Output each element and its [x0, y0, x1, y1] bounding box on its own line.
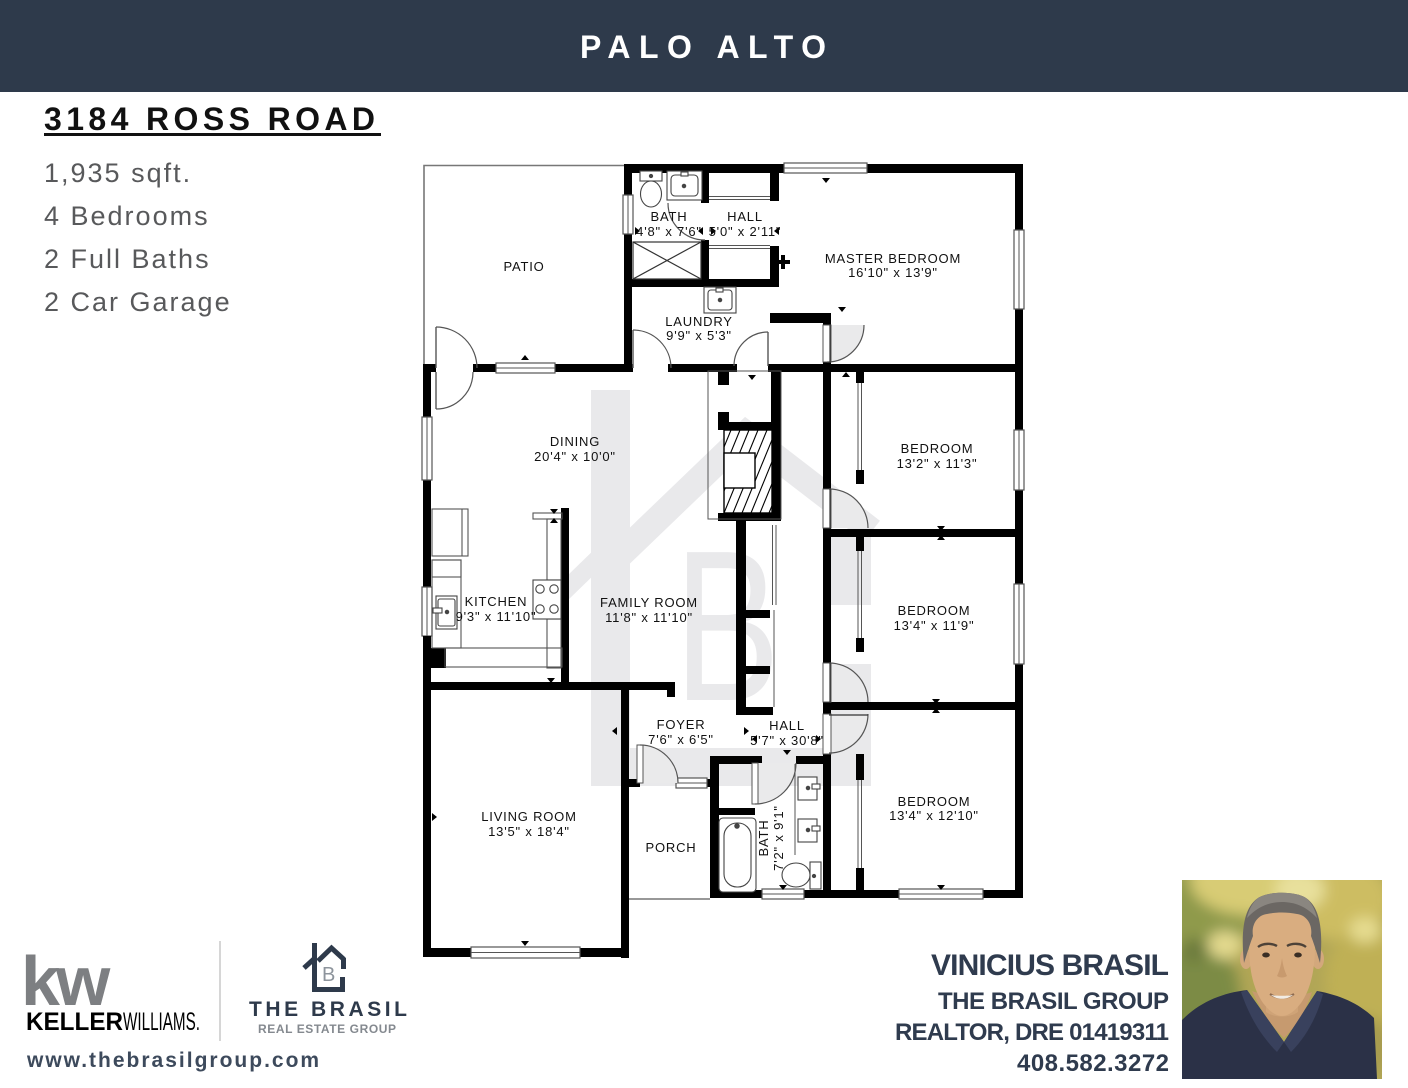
svg-text:13'4" x 11'9": 13'4" x 11'9" [894, 618, 975, 633]
svg-text:FAMILY ROOM: FAMILY ROOM [600, 595, 698, 610]
svg-text:408.582.3272: 408.582.3272 [1017, 1050, 1169, 1077]
svg-text:PATIO: PATIO [503, 259, 544, 274]
svg-text:2 Full Baths: 2 Full Baths [44, 244, 211, 274]
svg-text:11'8" x 11'10": 11'8" x 11'10" [605, 610, 693, 625]
svg-text:HALL: HALL [769, 718, 805, 733]
svg-text:4'8" x 7'6": 4'8" x 7'6" [636, 224, 702, 239]
svg-text:WILLIAMS.: WILLIAMS. [123, 1008, 200, 1036]
svg-text:3184 ROSS ROAD: 3184 ROSS ROAD [44, 101, 375, 137]
svg-text:20'4" x 10'0": 20'4" x 10'0" [534, 449, 616, 464]
svg-text:THE BRASIL GROUP: THE BRASIL GROUP [938, 988, 1169, 1015]
svg-text:BATH: BATH [756, 820, 771, 857]
svg-text:FOYER: FOYER [657, 717, 706, 732]
svg-text:BATH: BATH [651, 209, 688, 224]
svg-text:4 Bedrooms: 4 Bedrooms [44, 201, 210, 231]
svg-text:16'10" x 13'9": 16'10" x 13'9" [848, 265, 938, 280]
svg-text:13'2" x 11'3": 13'2" x 11'3" [897, 456, 978, 471]
svg-text:9'3" x 11'10": 9'3" x 11'10" [456, 609, 537, 624]
svg-text:www.thebrasilgroup.com: www.thebrasilgroup.com [26, 1049, 321, 1072]
svg-text:HALL: HALL [727, 209, 763, 224]
svg-text:PORCH: PORCH [646, 840, 697, 855]
svg-text:REALTOR, DRE 01419311: REALTOR, DRE 01419311 [895, 1019, 1169, 1046]
svg-text:LIVING ROOM: LIVING ROOM [481, 809, 576, 824]
svg-text:BEDROOM: BEDROOM [898, 603, 971, 618]
svg-text:5'7" x 30'8": 5'7" x 30'8" [750, 733, 824, 748]
svg-text:BEDROOM: BEDROOM [901, 441, 974, 456]
svg-text:KITCHEN: KITCHEN [465, 594, 528, 609]
svg-text:2 Car Garage: 2 Car Garage [44, 287, 232, 317]
svg-text:1,935 sqft.: 1,935 sqft. [44, 158, 192, 188]
svg-text:13'4" x 12'10": 13'4" x 12'10" [889, 808, 979, 823]
svg-text:B: B [322, 964, 335, 986]
svg-text:PALO ALTO: PALO ALTO [580, 29, 826, 65]
svg-text:BEDROOM: BEDROOM [898, 794, 971, 809]
svg-text:9'9" x 5'3": 9'9" x 5'3" [666, 328, 732, 343]
svg-text:13'5" x 18'4": 13'5" x 18'4" [488, 824, 570, 839]
svg-text:KELLER: KELLER [26, 1008, 123, 1036]
svg-text:MASTER BEDROOM: MASTER BEDROOM [825, 251, 961, 266]
svg-text:DINING: DINING [550, 434, 600, 449]
svg-text:7'2" x 9'1": 7'2" x 9'1" [771, 805, 786, 871]
svg-text:7'6" x 6'5": 7'6" x 6'5" [648, 732, 714, 747]
svg-text:REAL ESTATE GROUP: REAL ESTATE GROUP [258, 1022, 396, 1036]
svg-text:5'0" x 2'11": 5'0" x 2'11" [709, 224, 782, 239]
svg-text:LAUNDRY: LAUNDRY [665, 314, 733, 329]
svg-text:VINICIUS BRASIL: VINICIUS BRASIL [931, 949, 1169, 982]
